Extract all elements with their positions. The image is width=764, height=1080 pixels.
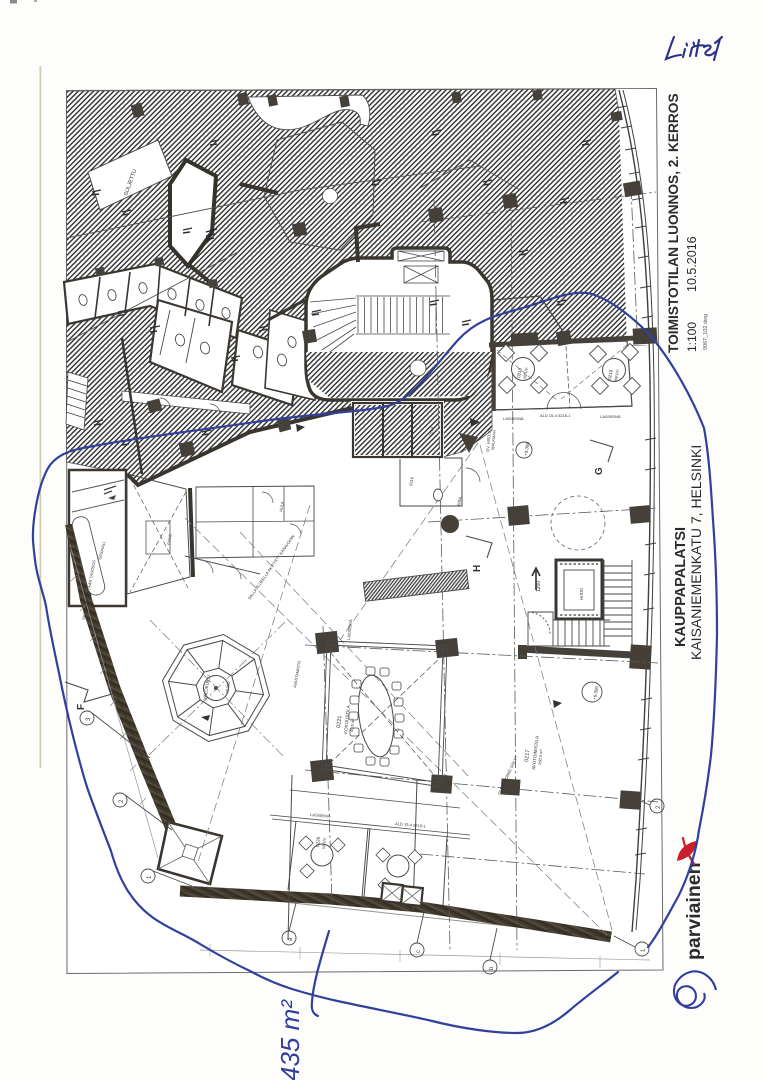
svg-text:1200: 1200: [536, 581, 542, 592]
svg-text:KAUPPAPALATSI: KAUPPAPALATSI: [673, 527, 689, 647]
svg-text:0221: 0221: [336, 715, 343, 728]
svg-text:c: c: [416, 950, 422, 953]
svg-text:9067_102 dwg: 9067_102 dwg: [703, 314, 709, 350]
svg-text:LASISEINÄ: LASISEINÄ: [503, 416, 524, 421]
svg-text:0220: 0220: [315, 836, 321, 847]
svg-text:KAISANIEMENKATU 7, HELSINKI: KAISANIEMENKATU 7, HELSINKI: [688, 445, 704, 660]
svg-text:435 m²: 435 m²: [275, 999, 305, 1080]
svg-text:F: F: [76, 704, 87, 710]
svg-text:H: H: [472, 565, 483, 572]
svg-text:TOIMISTOTILAN LUONNOS, 2. KERR: TOIMISTOTILAN LUONNOS, 2. KERROS: [666, 93, 681, 353]
svg-text:1:100: 1:100: [685, 322, 699, 352]
svg-text:HISSI: HISSI: [579, 588, 584, 600]
svg-text:0217: 0217: [524, 749, 531, 762]
svg-text:LASISEINÄ: LASISEINÄ: [600, 414, 621, 419]
svg-text:G: G: [594, 467, 605, 475]
svg-text:ALD 15-4 0218-1: ALD 15-4 0218-1: [540, 413, 571, 418]
svg-text:NEUV.: NEUV.: [321, 837, 327, 849]
svg-text:10.5.2016: 10.5.2016: [685, 236, 699, 292]
